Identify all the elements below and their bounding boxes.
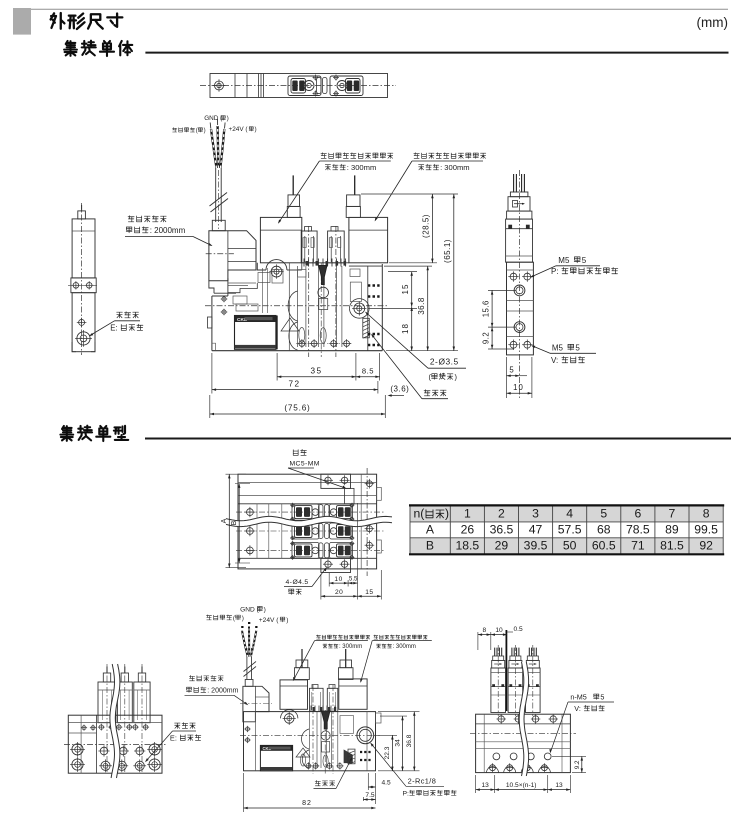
svg-text:(28.5): (28.5) [422,214,431,238]
svg-text:GND (: GND ( [240,607,259,614]
svg-text:(mm): (mm) [697,15,728,30]
svg-text:6: 6 [634,507,641,521]
svg-text:8.5: 8.5 [362,367,374,376]
svg-text:71: 71 [631,539,645,553]
svg-text:5: 5 [600,693,604,702]
svg-text:M5: M5 [558,256,570,265]
svg-text:MC5-MM: MC5-MM [290,461,320,468]
svg-text:10.5×(n-1): 10.5×(n-1) [506,782,537,789]
svg-text:+24V (: +24V ( [229,126,249,133]
svg-text:9.2: 9.2 [574,760,581,769]
svg-text:5.5: 5.5 [349,575,358,582]
svg-text:5: 5 [575,344,580,353]
svg-text:81.5: 81.5 [660,539,684,553]
svg-text:(3.6): (3.6) [390,385,409,394]
svg-text:9.2: 9.2 [481,332,490,344]
svg-text:72: 72 [288,379,300,388]
svg-text:Ø3.5: Ø3.5 [439,357,459,367]
svg-text:2-Rc1/8: 2-Rc1/8 [408,777,437,786]
svg-text:29: 29 [495,539,509,553]
svg-text:E:: E: [170,734,177,743]
svg-text:n-M5: n-M5 [570,693,586,702]
svg-text:4.5: 4.5 [382,780,391,787]
svg-text:2-: 2- [430,357,438,367]
svg-text:M5: M5 [552,344,564,353]
svg-text:B: B [426,539,434,553]
svg-text:22.3: 22.3 [384,746,391,759]
svg-text:0.5: 0.5 [514,626,523,633]
svg-text:26: 26 [461,523,475,537]
svg-text:15: 15 [401,284,410,295]
svg-text:8: 8 [703,507,710,521]
svg-text:20: 20 [335,589,343,596]
svg-text:4-: 4- [286,579,293,586]
svg-text:P:: P: [403,791,410,798]
svg-text:2: 2 [498,507,505,521]
svg-text:10: 10 [334,576,342,583]
svg-text:GND (: GND ( [204,115,223,122]
svg-text:: 300mm: : 300mm [393,644,416,650]
svg-text:13: 13 [482,782,490,789]
svg-text:99.5: 99.5 [694,523,718,537]
svg-text:18: 18 [401,323,410,334]
svg-text:): ) [286,617,288,624]
svg-text:(: ( [196,128,198,134]
svg-text:5: 5 [600,507,607,521]
svg-text:92: 92 [699,539,713,553]
svg-text:: 2000mm: : 2000mm [207,688,238,695]
svg-text:V:: V: [551,356,558,365]
svg-text:57.5: 57.5 [558,523,582,537]
svg-text:15.6: 15.6 [481,300,490,317]
svg-text:34: 34 [394,739,401,747]
svg-text:): ) [264,607,266,614]
svg-text:78.5: 78.5 [626,523,650,537]
svg-text:E:: E: [110,324,117,333]
svg-text:A: A [426,523,435,537]
svg-text:+24V (: +24V ( [259,617,279,624]
svg-text:18.5: 18.5 [455,539,479,553]
svg-text:82: 82 [302,800,312,807]
svg-text:50: 50 [563,539,577,553]
svg-text:7.5: 7.5 [365,792,374,799]
svg-text:36.8: 36.8 [417,297,426,315]
svg-text:(: ( [429,373,432,382]
svg-text:13: 13 [555,782,563,789]
svg-text:36.8: 36.8 [406,734,413,747]
svg-text:): ) [242,615,244,622]
svg-text:): ) [227,115,229,122]
svg-text:39.5: 39.5 [524,539,548,553]
svg-text:P:: P: [551,267,559,276]
svg-text:47: 47 [529,523,543,537]
svg-text:68: 68 [597,523,611,537]
svg-text:: 300mm: : 300mm [339,644,362,650]
svg-text:): ) [204,128,206,134]
svg-text:V:: V: [574,704,581,713]
svg-text:): ) [445,507,449,521]
svg-text:(75.6): (75.6) [284,404,310,413]
svg-text:B: B [231,520,238,525]
svg-text:7: 7 [669,507,676,521]
svg-text:3: 3 [532,507,539,521]
svg-text:10: 10 [495,627,503,634]
svg-text:(65.1): (65.1) [443,239,452,263]
svg-text:A: A [221,518,228,523]
svg-text:: 300mm: : 300mm [347,163,377,172]
svg-text:): ) [255,126,257,133]
svg-text:8: 8 [482,627,486,634]
svg-text:: 300mm: : 300mm [440,163,470,172]
svg-text:35: 35 [310,367,322,376]
svg-text:10: 10 [513,383,524,392]
svg-text:60.5: 60.5 [592,539,616,553]
svg-text:1: 1 [464,507,471,521]
svg-text:89: 89 [665,523,679,537]
svg-text:Ø4.5: Ø4.5 [293,579,309,586]
svg-text:: 2000mm: : 2000mm [150,226,186,235]
svg-text:4: 4 [566,507,573,521]
svg-text:36.5: 36.5 [490,523,514,537]
svg-text:): ) [454,373,456,382]
svg-text:n(: n( [414,507,425,521]
svg-text:5: 5 [582,256,587,265]
svg-text:15: 15 [365,589,373,596]
svg-text:5: 5 [509,366,514,375]
